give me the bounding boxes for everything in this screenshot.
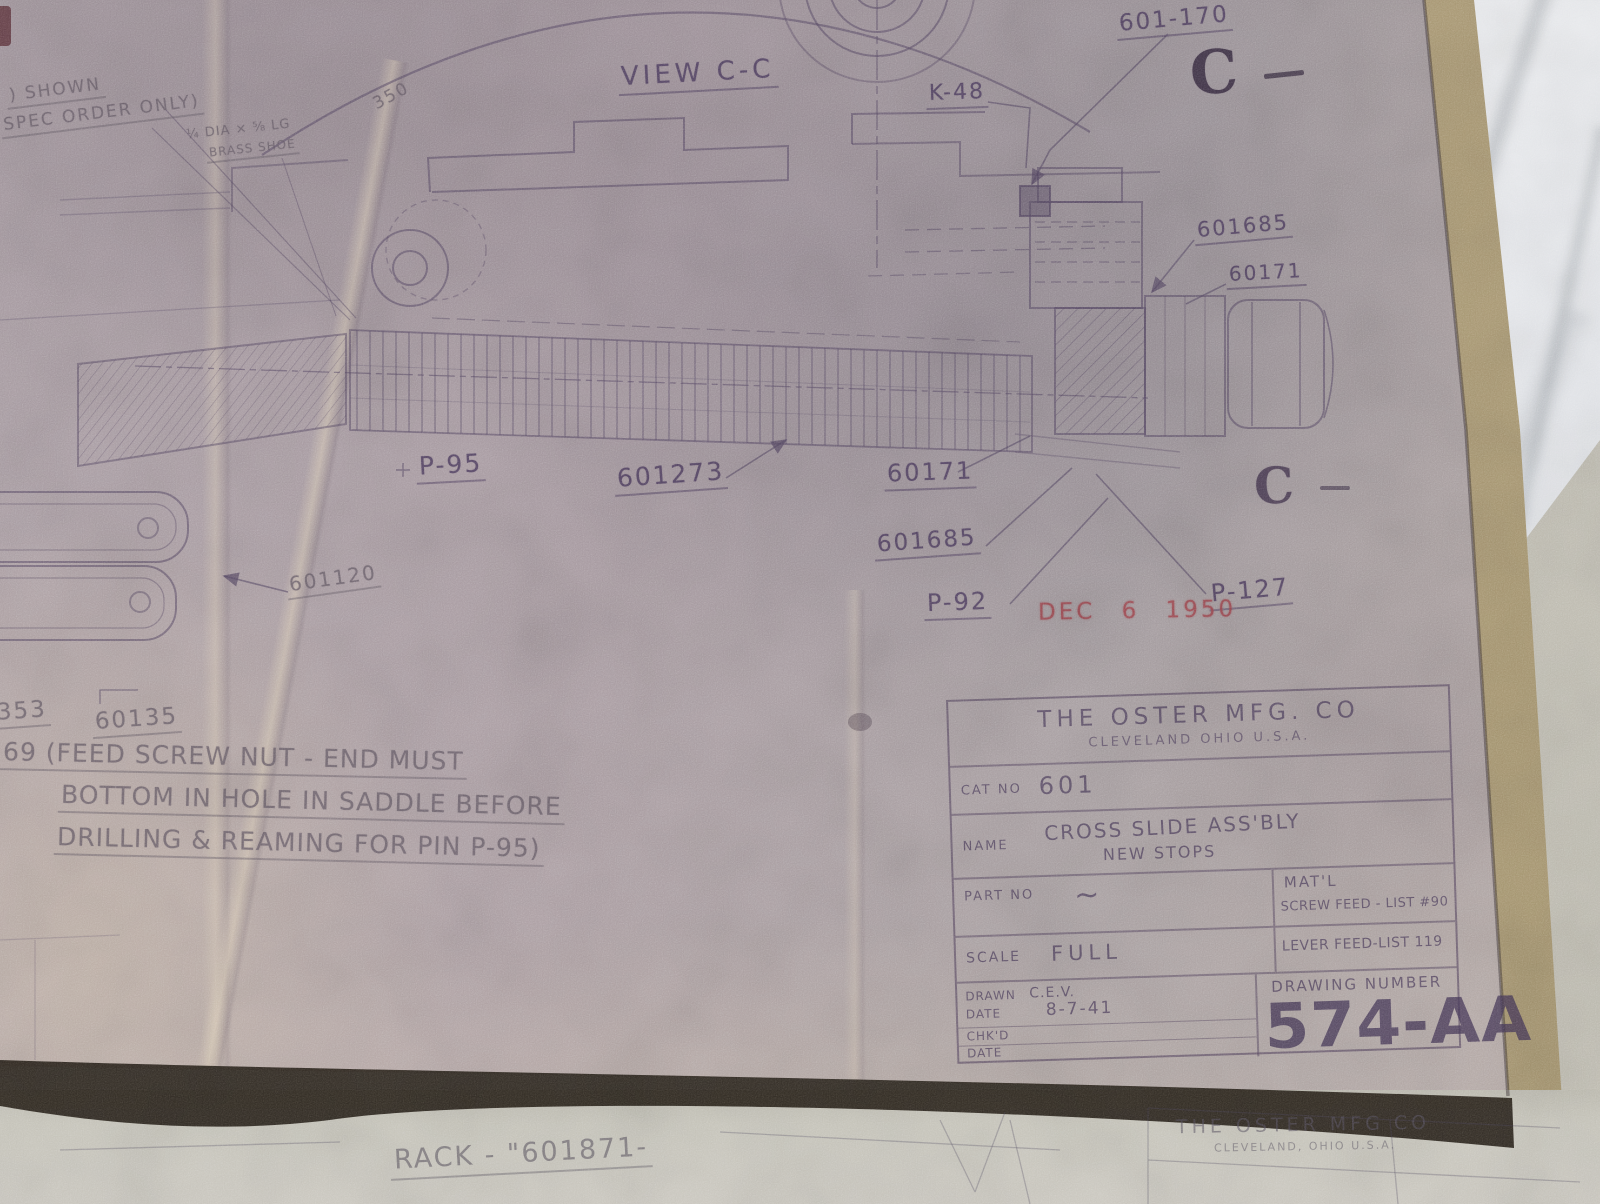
- date-stamp: DEC 6 1950: [1038, 596, 1237, 625]
- part-label-60135: 60135: [91, 703, 182, 739]
- date-value: 8-7-41: [1045, 998, 1113, 1020]
- material-note-line2: LEVER FEED-LIST 119: [1282, 934, 1443, 955]
- part-label-60171-top: 60171: [1225, 258, 1306, 290]
- cat-no-label: CAT NO: [961, 782, 1022, 799]
- title-block-divider: [1271, 870, 1275, 926]
- material-note-line1: SCREW FEED - LIST #90: [1280, 894, 1448, 914]
- material-label: MAT'L: [1284, 872, 1338, 892]
- name-label: NAME: [962, 838, 1009, 854]
- title-block-divider: [1273, 928, 1276, 972]
- part-no-value: ~: [1074, 877, 1100, 913]
- scale-value: FULL: [1051, 940, 1123, 966]
- title-block-divider: [1255, 974, 1260, 1056]
- name-value-line1: CROSS SLIDE ASS'BLY: [1044, 809, 1301, 846]
- name-value-line2: NEW STOPS: [1103, 842, 1217, 865]
- part-label-60171-mid: 60171: [883, 456, 976, 491]
- chkd-label: CHK'D: [966, 1028, 1009, 1043]
- part-label-k48: K-48: [926, 79, 989, 110]
- second-sheet-company: THE OSTER MFG CO: [1176, 1112, 1430, 1138]
- scale-label: SCALE: [966, 949, 1021, 967]
- section-marker-dash: [1320, 486, 1350, 490]
- cat-no-value: 601: [1038, 770, 1097, 800]
- drawing-number-value: 574-AA: [1263, 982, 1533, 1063]
- date-label: DATE: [966, 1006, 1002, 1021]
- part-label-p95: P-95: [415, 448, 486, 485]
- chkd-date-label: DATE: [967, 1045, 1003, 1060]
- title-block: THE OSTER MFG. CO CLEVELAND OHIO U.S.A. …: [946, 684, 1461, 1064]
- part-label-p92: P-92: [923, 587, 991, 621]
- drawn-label: DRAWN: [965, 988, 1016, 1004]
- part-no-label: PART NO: [964, 887, 1034, 904]
- title-block-drawn-row: DRAWN C.E.V. DATE 8-7-41 CHK'D DATE DRAW…: [957, 966, 1459, 1066]
- title-block-divider: [958, 1018, 1256, 1028]
- section-marker-c-mid: C: [1252, 455, 1297, 516]
- section-marker-c-top: C: [1188, 36, 1243, 109]
- part-label-353: 353: [0, 696, 51, 730]
